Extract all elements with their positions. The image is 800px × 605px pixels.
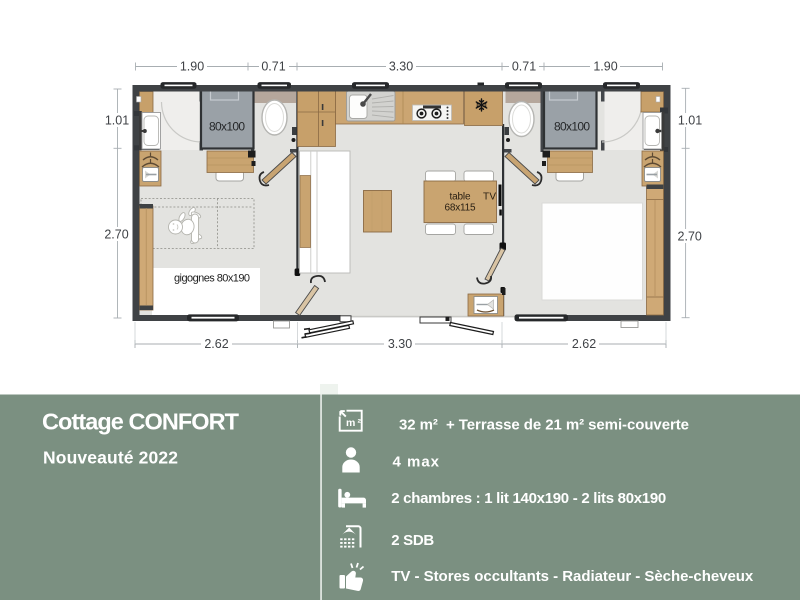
- svg-text:1.01: 1.01: [678, 114, 702, 128]
- svg-text:2.62: 2.62: [572, 337, 596, 351]
- svg-text:2 chambres : 1 lit 140x190 - 2: 2 chambres : 1 lit 140x190 - 2 lits 80x1…: [391, 490, 666, 507]
- svg-text:TV - Stores occultants - Radia: TV - Stores occultants - Radiateur - Sèc…: [391, 568, 754, 585]
- svg-text:4 max: 4 max: [393, 453, 440, 470]
- svg-text:3.30: 3.30: [388, 337, 412, 351]
- svg-text:80x100: 80x100: [554, 120, 590, 134]
- svg-text:0.71: 0.71: [261, 60, 285, 74]
- svg-text:Nouveauté 2022: Nouveauté 2022: [43, 447, 178, 467]
- svg-text:gigognes 80x190: gigognes 80x190: [174, 273, 250, 285]
- svg-text:32 m² + Terrasse de 21 m² sem: 32 m² + Terrasse de 21 m² semi-couverte: [399, 417, 689, 434]
- svg-text:1.90: 1.90: [593, 60, 617, 74]
- svg-text:0.71: 0.71: [512, 60, 536, 74]
- svg-text:table: table: [450, 192, 471, 203]
- svg-text:2.70: 2.70: [104, 228, 128, 242]
- svg-text:2.70: 2.70: [678, 230, 702, 244]
- svg-text:Cottage CONFORT: Cottage CONFORT: [42, 409, 240, 435]
- svg-text:68x115: 68x115: [445, 203, 476, 214]
- svg-text:2 SDB: 2 SDB: [391, 532, 434, 549]
- svg-text:TV: TV: [483, 192, 496, 203]
- svg-text:1.01: 1.01: [105, 114, 129, 128]
- svg-text:1.90: 1.90: [180, 60, 204, 74]
- svg-text:80x100: 80x100: [209, 120, 245, 134]
- svg-text:m²: m²: [346, 417, 362, 429]
- svg-text:2.62: 2.62: [204, 337, 228, 351]
- svg-text:3.30: 3.30: [389, 60, 413, 74]
